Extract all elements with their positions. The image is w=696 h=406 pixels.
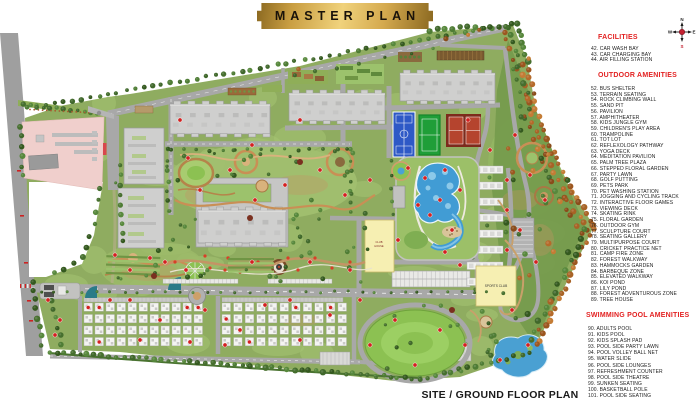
svg-text:HOUSE: HOUSE <box>374 244 383 248</box>
svg-text:S: S <box>680 44 683 49</box>
svg-text:E: E <box>692 30 695 35</box>
svg-text:SPORTS CLUB: SPORTS CLUB <box>485 284 507 288</box>
svg-text:N: N <box>680 17 683 22</box>
svg-text:CLUB: CLUB <box>376 240 383 244</box>
